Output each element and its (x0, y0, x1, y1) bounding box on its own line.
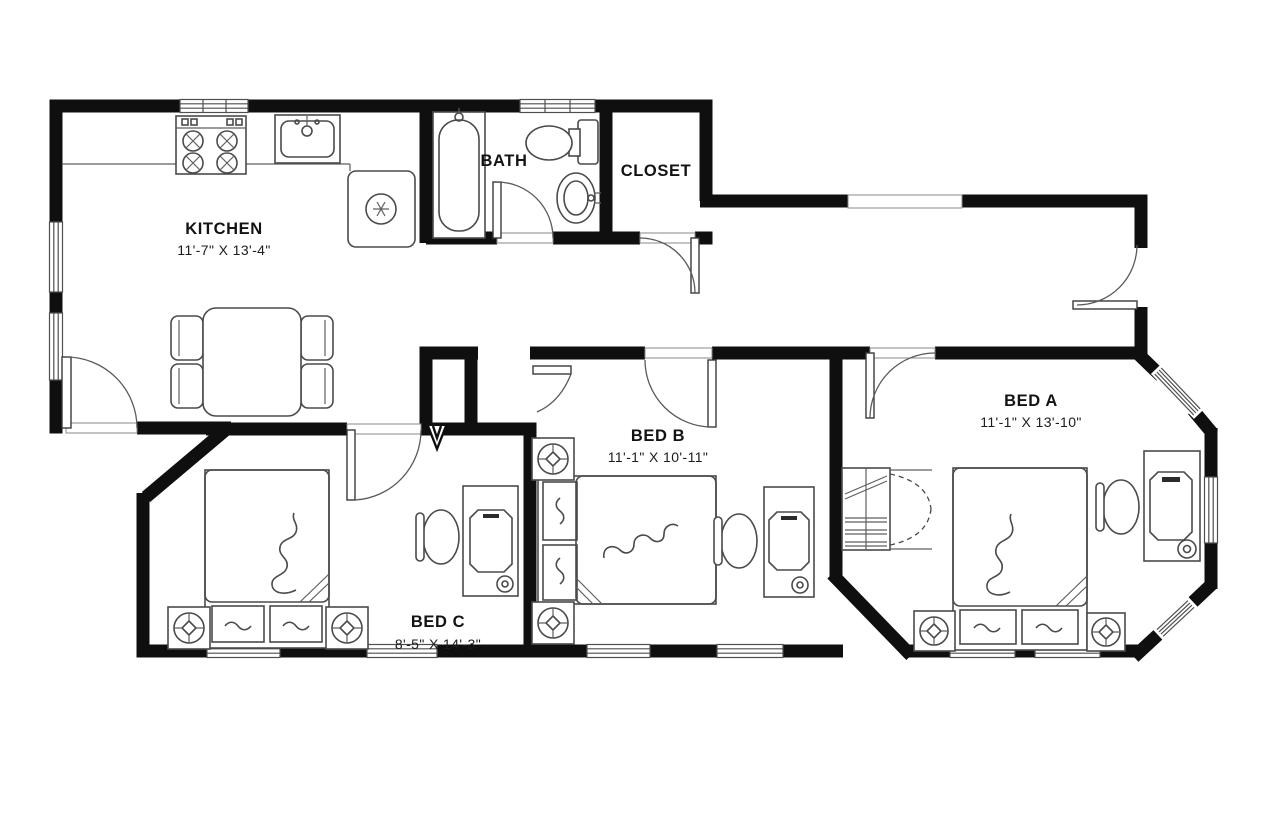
kitchen-label: KITCHEN (185, 220, 263, 238)
floor-plan-page: KITCHEN 11'-7" X 13'-4" BATH CLOSET BED … (0, 0, 1280, 828)
kitchen-dims: 11'-7" X 13'-4" (177, 242, 270, 258)
bed-icon (205, 470, 329, 648)
door-vestibule (533, 366, 571, 412)
bathtub-icon (433, 108, 485, 238)
door-bed-b (645, 348, 716, 427)
bath-fixtures (433, 108, 601, 238)
closet-label: CLOSET (621, 162, 692, 180)
closet-shelves-icon (842, 468, 932, 550)
nightstand-lamp-icon (168, 607, 210, 649)
window-icon (1205, 477, 1218, 543)
desk-icon (1144, 451, 1200, 561)
window-icon (1155, 368, 1200, 415)
bed-c-furniture (168, 470, 518, 649)
bath-sink-icon (557, 173, 601, 223)
window-icon (1157, 601, 1194, 637)
desk-icon (463, 486, 518, 596)
opening-marker (848, 195, 962, 208)
task-chair-icon (416, 510, 459, 564)
task-chair-icon (1096, 480, 1139, 534)
bed-b-dims: 11'-1" X 10'-11" (608, 449, 709, 465)
bed-c-dims: 8'-5" X 14'-3" (395, 636, 481, 652)
task-chair-icon (714, 514, 757, 568)
wall-break-marker (428, 426, 446, 449)
nightstand-lamp-icon (1087, 613, 1125, 651)
nightstand-lamp-icon (326, 607, 368, 649)
floor-plan: KITCHEN 11'-7" X 13'-4" BATH CLOSET BED … (0, 0, 1280, 828)
door-entry (1073, 245, 1137, 309)
bed-a-label: BED A (1004, 392, 1058, 410)
door-bed-c (347, 424, 421, 500)
bed-a-furniture (914, 451, 1200, 651)
window-icon (520, 100, 595, 113)
bed-b-label: BED B (631, 427, 685, 445)
refrigerator-icon (348, 171, 415, 247)
bed-icon (538, 476, 716, 604)
window-icon (717, 645, 783, 658)
door-bath (493, 182, 553, 243)
bed-a-dims: 11'-1" X 13'-10" (980, 414, 1082, 430)
kitchen-fixtures (62, 115, 415, 416)
dining-table-icon (171, 308, 333, 416)
window-icon (180, 100, 248, 113)
bed-icon (953, 468, 1087, 650)
bed-c-label: BED C (411, 613, 465, 631)
window-icon (50, 313, 63, 380)
desk-icon (764, 487, 814, 597)
stove-icon (176, 116, 246, 174)
nightstand-lamp-icon (532, 438, 574, 480)
nightstand-lamp-icon (914, 611, 955, 651)
window-icon (587, 645, 650, 658)
door-closet (640, 233, 699, 293)
bath-label: BATH (480, 152, 527, 170)
door-bed-a (866, 348, 935, 418)
door-dining (62, 357, 137, 433)
kitchen-sink-icon (275, 115, 340, 163)
window-icon (50, 222, 63, 292)
toilet-icon (526, 120, 598, 164)
nightstand-lamp-icon (532, 602, 574, 644)
